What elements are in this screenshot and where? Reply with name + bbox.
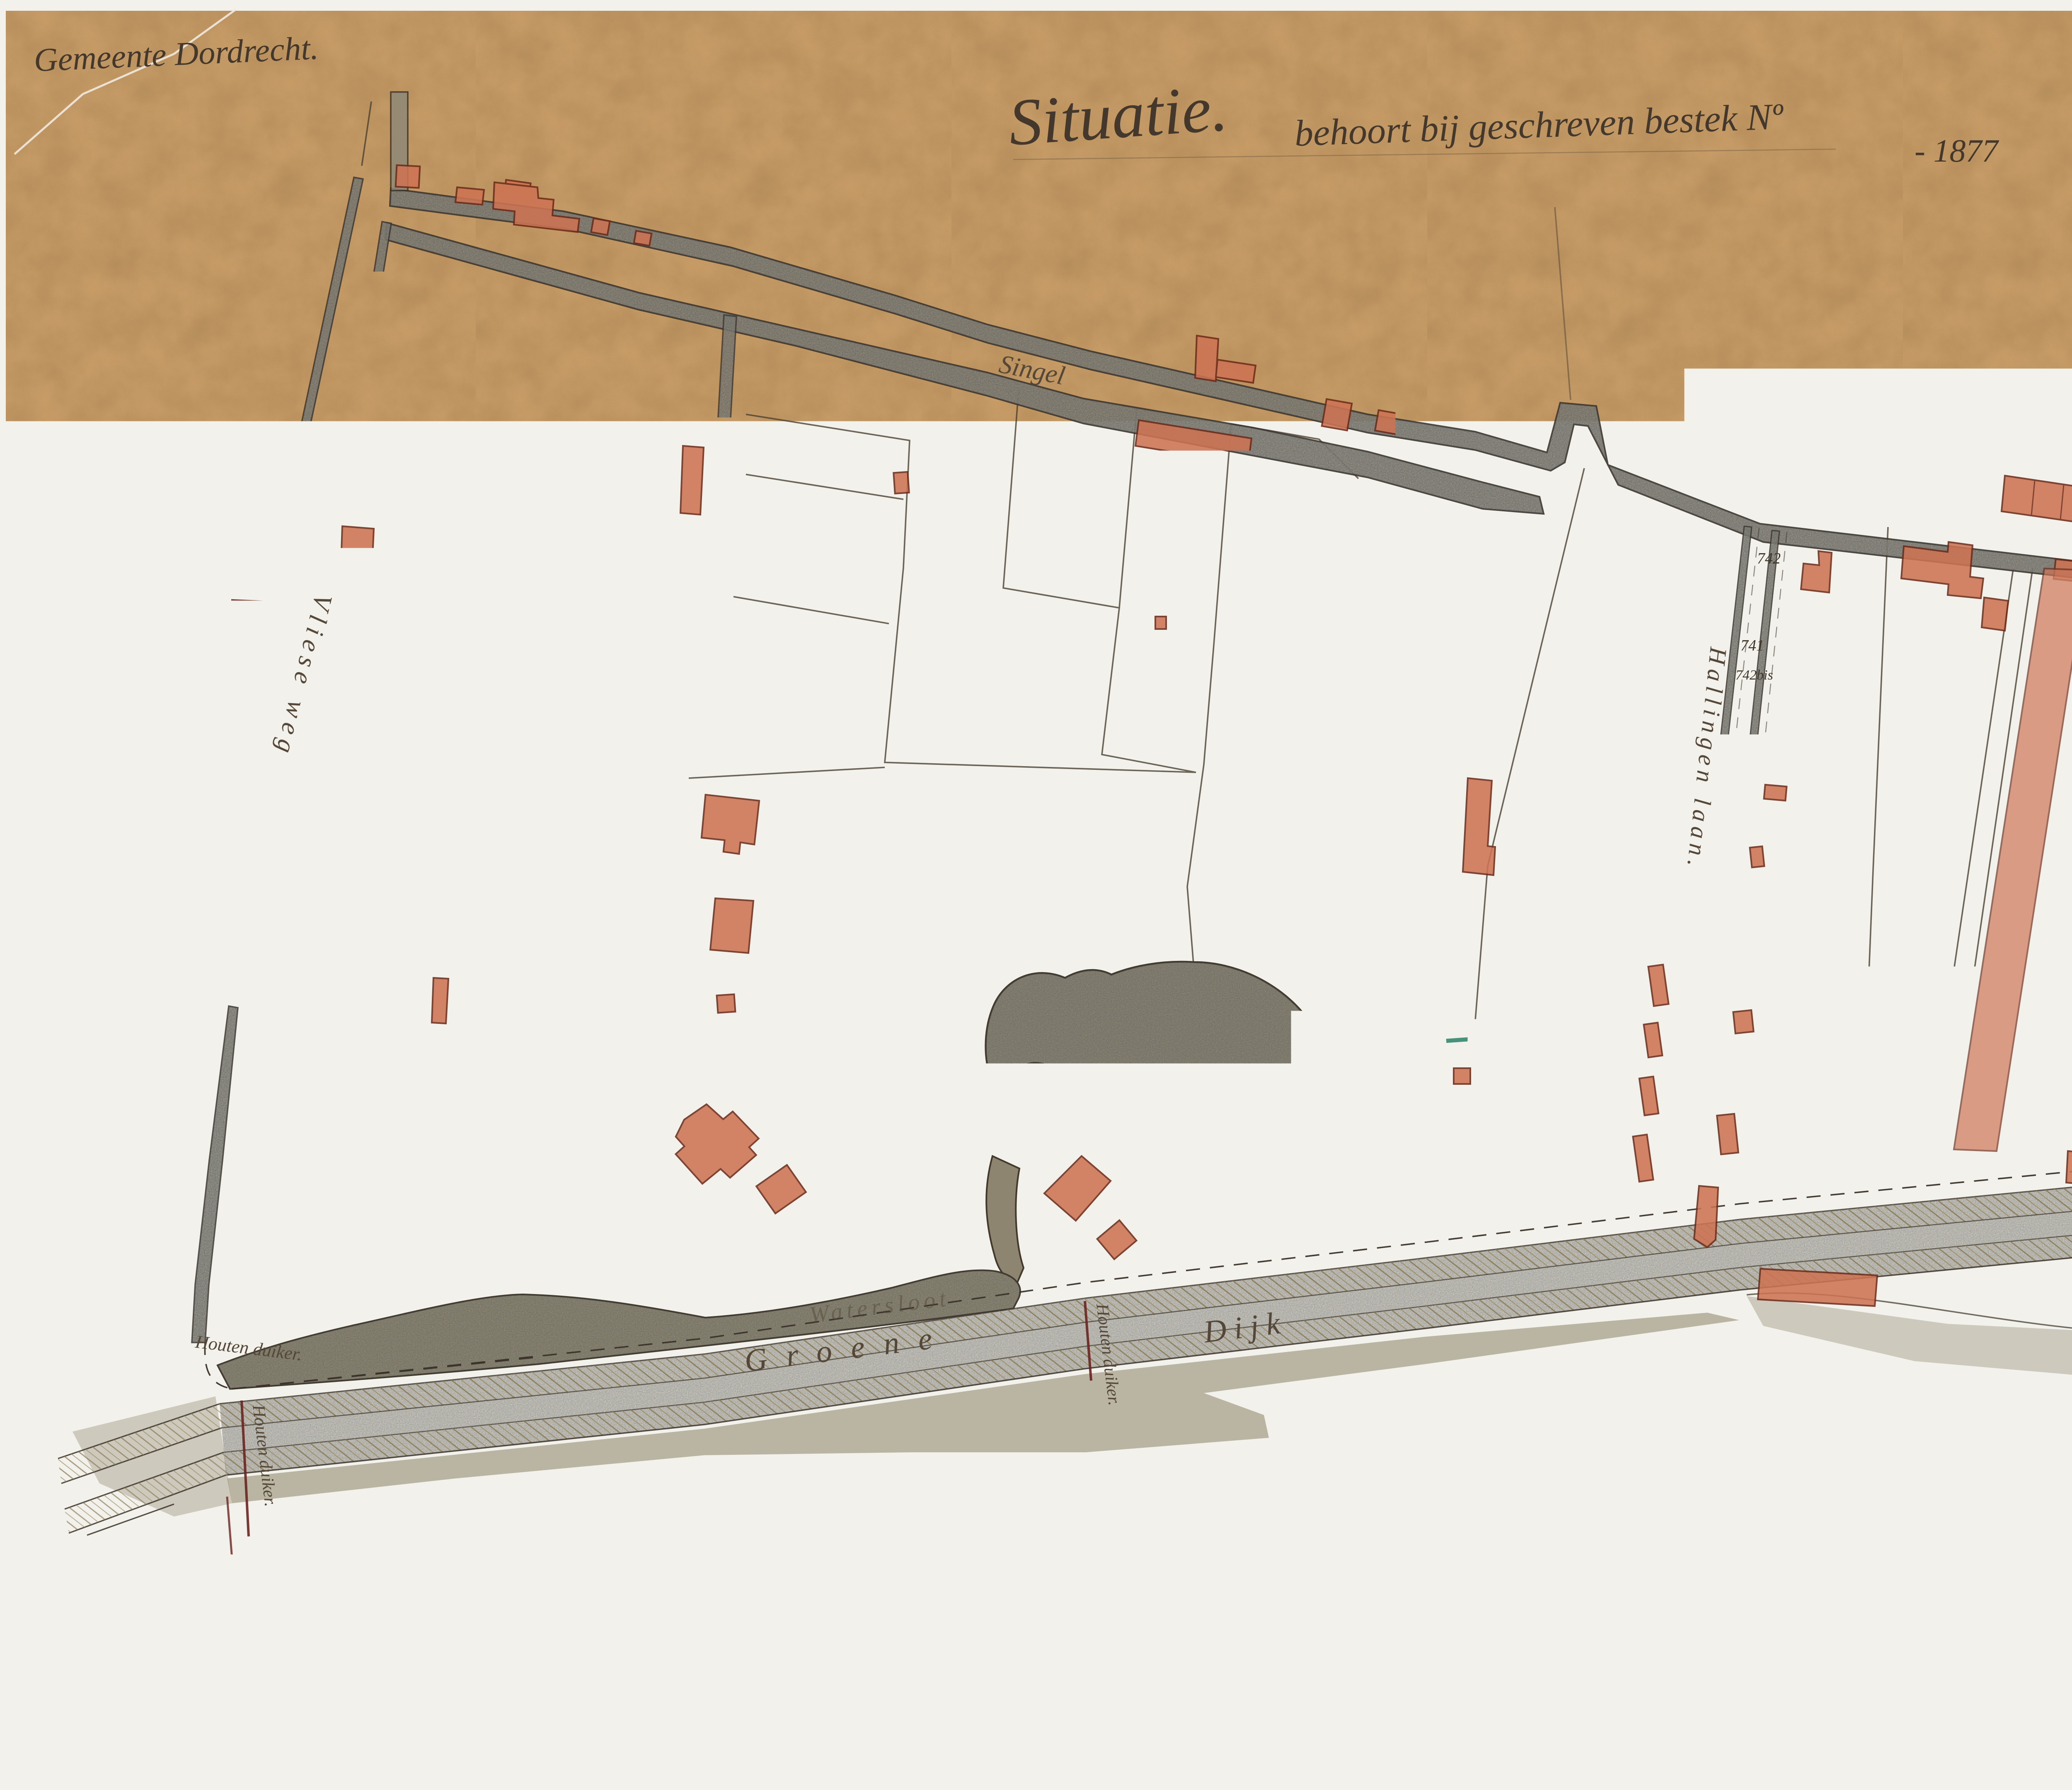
svg-text:- 1877: - 1877 [1915,133,1999,169]
svg-text:2036: 2036 [1970,1630,2024,1659]
svg-text:Sectie C.: Sectie C. [115,444,262,490]
svg-text:0,81÷: 0,81÷ [966,1282,1013,1306]
svg-text:785: 785 [2052,1137,2072,1166]
svg-text:= A: = A [1723,1190,1753,1214]
svg-text:Te maken dam: Te maken dam [186,1703,357,1737]
svg-text:2140: 2140 [1972,1728,2025,1758]
svg-text:43: 43 [1366,1277,1396,1310]
svg-text:536: 536 [1751,1208,1774,1225]
svg-text:741: 741 [1740,637,1764,654]
svg-text:742bis: 742bis [1736,668,1773,683]
svg-text:0,19÷: 0,19÷ [1953,1184,2001,1207]
svg-text:0,21÷: 0,21÷ [1812,1214,1859,1238]
svg-text:2033: 2033 [1972,1425,2025,1454]
svg-text:„: „ [1795,1427,1808,1452]
svg-text:742bis: 742bis [1726,1068,1766,1085]
svg-text:38: 38 [126,1536,156,1570]
svg-text:741: 741 [1702,1206,1725,1222]
svg-text:45: 45 [158,1309,188,1342]
svg-text:id .: id . [453,1647,491,1680]
svg-text:1798: 1798 [1972,1563,2025,1593]
svg-text:0,09÷: 0,09÷ [1513,1224,1561,1248]
svg-text:2095: 2095 [2009,1166,2060,1194]
svg-text:37: 37 [1516,1649,1588,1696]
svg-text:Nº 834, 833, 1027, 793, 785: Nº 834, 833, 1027, 793, 785 [1789,1391,2072,1420]
svg-text:„: „ [1795,1563,1808,1589]
svg-text:2139 , 741 , 742 , 742 bis: 2139 , 741 , 742 , 742 bis [1832,1699,2059,1724]
svg-text:44: 44 [120,1706,150,1739]
svg-text:„: „ [1795,1462,1808,1488]
svg-text:24: 24 [1512,1580,1590,1637]
svg-text:742: 742 [1757,550,1781,567]
svg-text:Te maken dam .: Te maken dam . [187,1534,373,1567]
svg-text:2139: 2139 [481,1242,549,1280]
svg-text:2036: 2036 [1785,1166,1848,1200]
svg-text:„: „ [1795,1696,1808,1722]
svg-text:2140: 2140 [1513,1188,1578,1224]
svg-text:742: 742 [1723,1122,1745,1139]
svg-text:2095: 2095 [1970,1461,2024,1491]
svg-text:42: 42 [1681,1220,1711,1254]
svg-text:Situatie.: Situatie. [1006,70,1230,159]
svg-text:2139: 2139 [1296,1207,1364,1244]
svg-text:783: 783 [1921,1184,1945,1201]
svg-text:44: 44 [1476,1021,1506,1054]
svg-text:42: 42 [1634,1244,1665,1278]
svg-text:„: „ [1795,1630,1808,1656]
